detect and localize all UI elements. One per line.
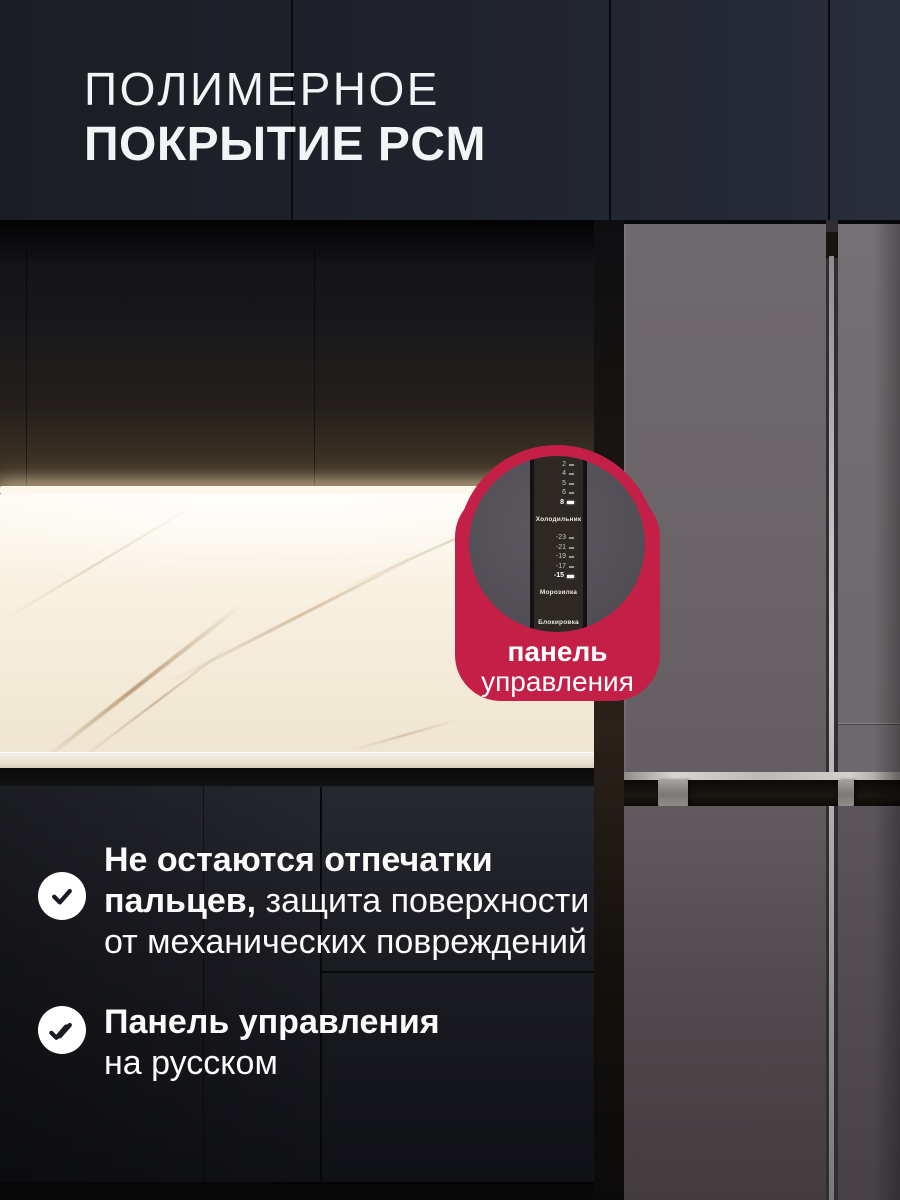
fridge-handle [658,780,688,806]
panel-temp-indicator [569,492,574,494]
fridge-door-lower-left [624,806,826,1200]
headline-line-1: ПОЛИМЕРНОЕ [84,62,486,116]
floor-shadow [0,1182,600,1200]
control-panel-strip: 24568Холодильник-23-21-19-17-15Морозилка… [530,456,587,632]
feature-line: Не остаются отпечатки [104,840,629,881]
panel-section-label: Холодильник [534,516,583,524]
panel-temp-indicator [569,566,574,568]
control-panel-callout: 24568Холодильник-23-21-19-17-15Морозилка… [455,445,660,701]
panel-temp-indicator [569,464,574,466]
feature-bold-text: Панель управления [104,1003,440,1041]
headline: ПОЛИМЕРНОЕ ПОКРЫТИЕ PCM [84,62,486,173]
panel-temp-value: 2 [562,461,566,469]
refrigerator [624,220,900,1200]
panel-temp-indicator [569,556,574,558]
feature-regular-text: на русском [104,1044,278,1082]
panel-temp-row: 4 [534,470,583,480]
feature-bold-text: пальцев, [104,882,256,920]
feature-1-badge [38,872,86,920]
panel-temp-row: -17 [534,562,583,572]
feature-1-text: Не остаются отпечаткипальцев, защита пов… [104,840,629,963]
control-panel-zoom-photo: 24568Холодильник-23-21-19-17-15Морозилка… [469,456,645,632]
panel-temp-row: -23 [534,534,583,544]
panel-temp-indicator [567,501,574,504]
fridge-door-gap [826,220,838,1200]
panel-temp-row: 2 [534,460,583,470]
feature-2-text: Панель управленияна русском [104,1002,629,1084]
panel-temp-value: -21 [556,544,566,552]
panel-temp-row: 5 [534,479,583,489]
feature-regular-text: от механических повреждений [104,923,587,961]
feature-line: пальцев, защита поверхности [104,881,629,922]
niche-seam [314,250,315,488]
feature-regular-text: защита поверхности [256,882,589,920]
countertop-shadow [0,768,598,788]
panel-temp-value: 6 [562,489,566,497]
panel-temp-row: -15 [534,572,583,582]
feature-line: на русском [104,1043,629,1084]
panel-temp-value: -17 [556,563,566,571]
panel-temp-value: 4 [562,470,566,478]
feature-2-badge [38,1006,86,1054]
panel-temp-indicator [567,575,574,578]
callout-label-line-2: управления [455,667,660,697]
marble-vein [352,719,458,751]
cabinet-seam [609,0,611,220]
panel-temp-row: 8 [534,498,583,508]
panel-temp-row: 6 [534,489,583,499]
door-gap-trim [829,256,834,1200]
panel-section-label: Блокировка [534,619,583,627]
panel-temp-value: 8 [560,499,564,507]
control-panel-strip-content: 24568Холодильник-23-21-19-17-15Морозилка… [534,460,583,627]
fridge-handle-rail [624,772,900,780]
panel-temp-row: -19 [534,553,583,563]
panel-temp-indicator [569,483,574,485]
callout-label-line-1: панель [455,637,660,667]
headline-line-2: ПОКРЫТИЕ PCM [84,116,486,173]
cabinet-seam [828,0,830,220]
double-check-icon [45,1013,79,1047]
fridge-edge-vignette [874,220,900,1200]
panel-temp-indicator [569,537,574,539]
panel-temp-indicator [569,547,574,549]
panel-temp-indicator [569,473,574,475]
check-icon [45,879,79,913]
cabinet-seam [322,971,600,973]
countertop [0,752,598,769]
panel-temp-row: -21 [534,543,583,553]
fridge-handle [838,780,854,806]
panel-temp-value: -23 [556,534,566,542]
feature-line: Панель управления [104,1002,629,1043]
panel-temp-value: -19 [556,553,566,561]
panel-temp-value: -15 [554,572,564,580]
product-card: ПОЛИМЕРНОЕ ПОКРЫТИЕ PCM 24568Холодильник… [0,0,900,1200]
feature-bold-text: Не остаются отпечатки [104,841,493,879]
door-gap-hinge [826,232,838,258]
niche-seam [26,250,27,488]
panel-section-label: Морозилка [534,589,583,597]
niche-shadow [0,220,600,266]
panel-temp-value: 5 [562,480,566,488]
feature-line: от механических повреждений [104,922,629,963]
